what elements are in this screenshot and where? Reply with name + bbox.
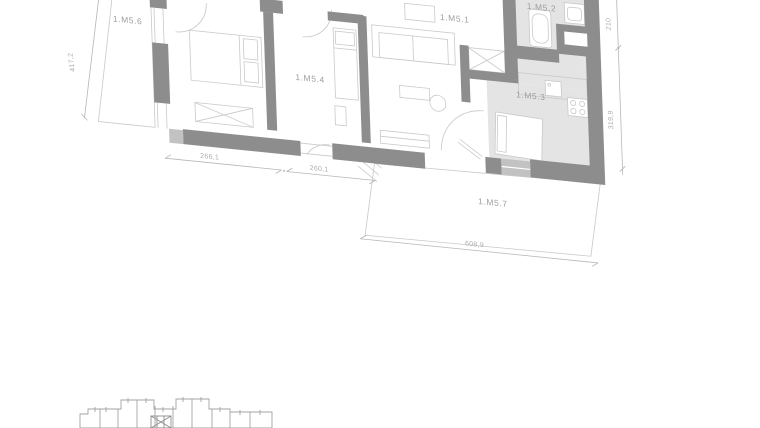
wall-niche	[564, 31, 587, 46]
room-label-1m54: 1.M5.4	[295, 72, 325, 85]
kitchen-sink	[545, 80, 561, 97]
dimension-label: 266,1	[200, 153, 219, 162]
room-label-1m51: 1.M5.1	[440, 12, 470, 25]
window-segment	[169, 129, 183, 144]
sofa	[372, 25, 456, 65]
wall-segment	[152, 42, 170, 104]
floor-plan-svg: 417,2 266,1 260,1 608,9 210	[0, 0, 760, 428]
dimension-label: 608,9	[465, 240, 484, 249]
stove	[567, 98, 588, 118]
single-bed	[333, 28, 358, 100]
bedside-shelf	[335, 106, 347, 126]
wardrobe	[195, 102, 253, 127]
key-plan-outline	[80, 399, 272, 428]
dimension-bottom-left: 266,1	[165, 149, 285, 174]
dimension-label: 319,9	[608, 110, 616, 130]
wall-pier	[485, 157, 501, 175]
tv-bench	[380, 130, 429, 148]
washbasin	[564, 3, 585, 25]
dimension-label: 417,2	[67, 53, 77, 72]
coffee-table	[400, 85, 430, 100]
dimension-bottom-mid: 260,1	[286, 163, 375, 185]
wall-segment	[263, 12, 277, 131]
door-arc-terrace	[440, 106, 485, 154]
kitchen-bed	[495, 112, 543, 161]
window-left-lower	[157, 103, 167, 129]
dimension-label: 210	[605, 17, 612, 30]
window-left-upper	[154, 8, 164, 44]
key-plan-partitions	[100, 399, 250, 428]
installation-shaft	[469, 48, 506, 74]
key-plan	[80, 397, 272, 428]
wall-segment	[260, 0, 283, 14]
bathtub	[529, 9, 552, 48]
floor-plan-page: 417,2 266,1 260,1 608,9 210	[0, 0, 760, 428]
dimension-right-chain: 210 319,9	[603, 0, 625, 175]
wall-segment	[357, 15, 370, 143]
door-leaf-open	[458, 139, 483, 159]
shelf-top	[405, 3, 435, 22]
dimension-label: 260,1	[310, 165, 329, 174]
pouf	[430, 94, 446, 112]
double-bed	[189, 30, 262, 87]
door-arc-bedroom	[174, 0, 207, 35]
main-plan: 417,2 266,1 260,1 608,9 210	[63, 0, 629, 270]
key-plan-stairwell	[151, 416, 171, 428]
wall-segment	[149, 0, 166, 9]
